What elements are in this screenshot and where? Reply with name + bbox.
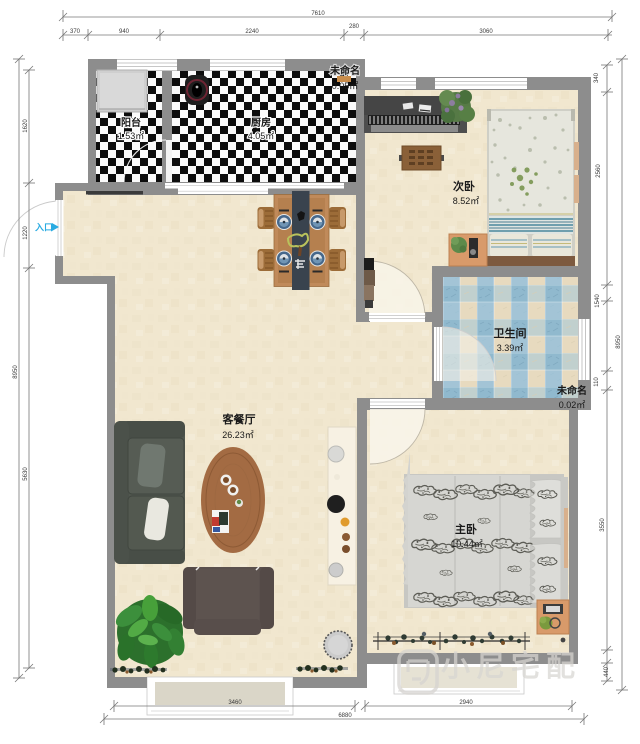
svg-text:3550: 3550 xyxy=(600,518,606,532)
svg-text:3060: 3060 xyxy=(479,29,493,35)
svg-text:8.52㎡: 8.52㎡ xyxy=(453,196,480,206)
svg-text:2560: 2560 xyxy=(596,164,602,178)
svg-text:客餐厅: 客餐厅 xyxy=(222,412,256,426)
svg-text:8950: 8950 xyxy=(616,335,622,349)
svg-text:2940: 2940 xyxy=(459,700,473,706)
svg-text:3460: 3460 xyxy=(228,700,242,706)
svg-text:8950: 8950 xyxy=(13,365,19,379)
svg-text:6880: 6880 xyxy=(338,713,352,719)
svg-text:5630: 5630 xyxy=(23,467,29,481)
svg-text:340: 340 xyxy=(594,72,600,83)
svg-text:940: 940 xyxy=(119,29,130,35)
svg-text:1540: 1540 xyxy=(595,294,601,308)
svg-text:卫生间: 卫生间 xyxy=(494,326,527,340)
svg-text:280: 280 xyxy=(349,24,360,30)
svg-text:1.53㎡: 1.53㎡ xyxy=(118,131,145,141)
svg-text:次卧: 次卧 xyxy=(453,179,475,193)
svg-text:110: 110 xyxy=(594,377,600,387)
svg-text:440: 440 xyxy=(604,666,610,677)
svg-text:阳台: 阳台 xyxy=(121,116,141,129)
svg-text:未命名: 未命名 xyxy=(556,384,587,397)
svg-text:0.05㎡: 0.05㎡ xyxy=(332,81,359,91)
svg-text:0.02㎡: 0.02㎡ xyxy=(559,400,586,410)
svg-text:未命名: 未命名 xyxy=(329,64,360,77)
svg-text:1220: 1220 xyxy=(23,226,29,240)
svg-text:2240: 2240 xyxy=(245,29,259,35)
svg-text:3.39㎡: 3.39㎡ xyxy=(497,343,524,353)
svg-text:4.05㎡: 4.05㎡ xyxy=(248,131,275,141)
svg-text:370: 370 xyxy=(70,29,81,35)
svg-text:10.44㎡: 10.44㎡ xyxy=(451,539,483,549)
svg-text:小尼宅配: 小尼宅配 xyxy=(441,649,581,683)
svg-text:入口: 入口 xyxy=(34,223,53,233)
svg-text:7610: 7610 xyxy=(311,11,325,17)
svg-text:1620: 1620 xyxy=(23,119,29,133)
svg-text:26.23㎡: 26.23㎡ xyxy=(222,430,254,440)
svg-text:厨房: 厨房 xyxy=(251,116,271,129)
svg-text:主卧: 主卧 xyxy=(455,522,477,536)
